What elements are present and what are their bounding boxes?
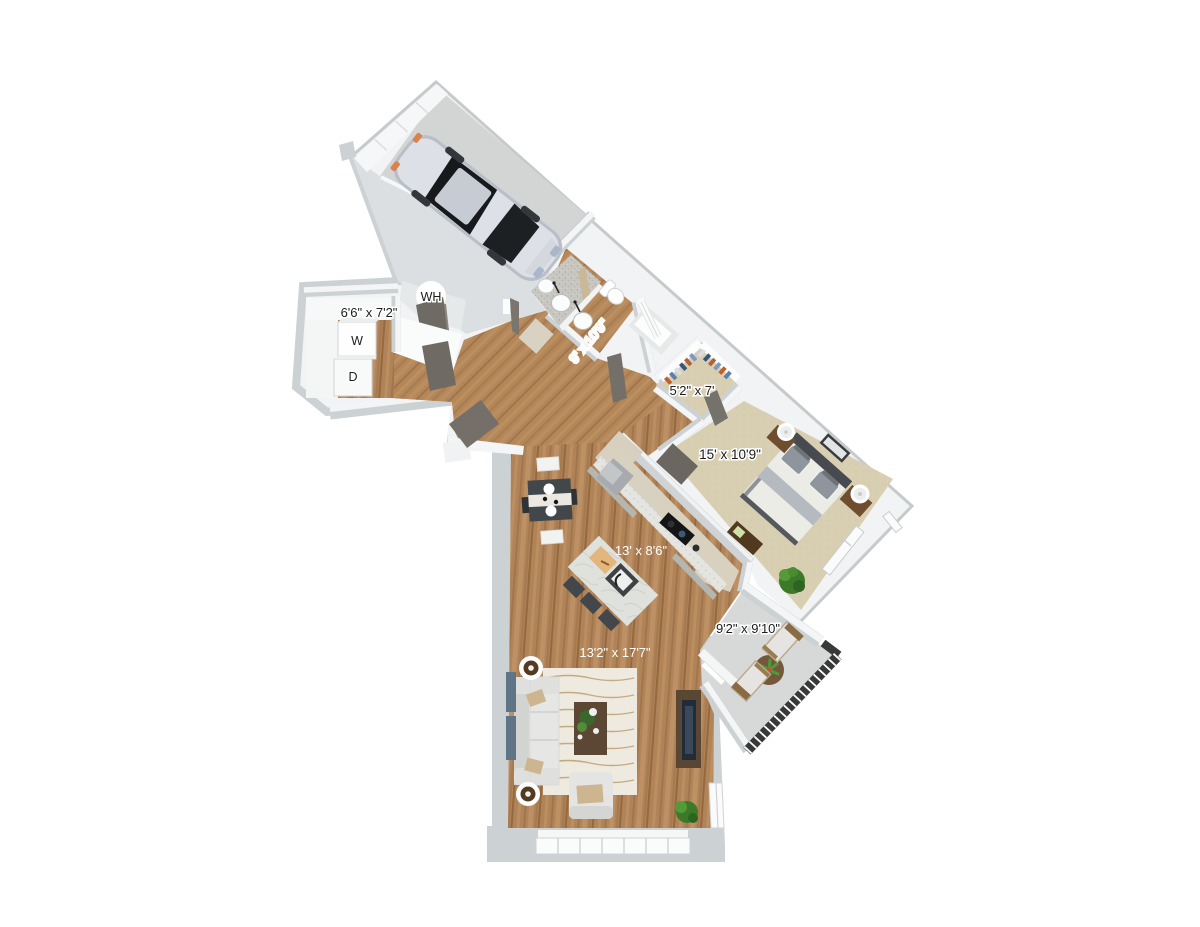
svg-text:13'2" x 17'7": 13'2" x 17'7" [579, 645, 651, 660]
svg-text:5'2" x 7': 5'2" x 7' [670, 383, 715, 398]
svg-text:13' x 8'6": 13' x 8'6" [615, 543, 668, 558]
svg-text:6'6" x 7'2": 6'6" x 7'2" [341, 305, 398, 320]
svg-text:W: W [351, 334, 363, 348]
svg-text:15' x 10'9": 15' x 10'9" [699, 447, 761, 462]
svg-text:WH: WH [421, 290, 442, 304]
svg-text:D: D [348, 370, 357, 384]
svg-text:9'2" x 9'10": 9'2" x 9'10" [716, 621, 780, 636]
